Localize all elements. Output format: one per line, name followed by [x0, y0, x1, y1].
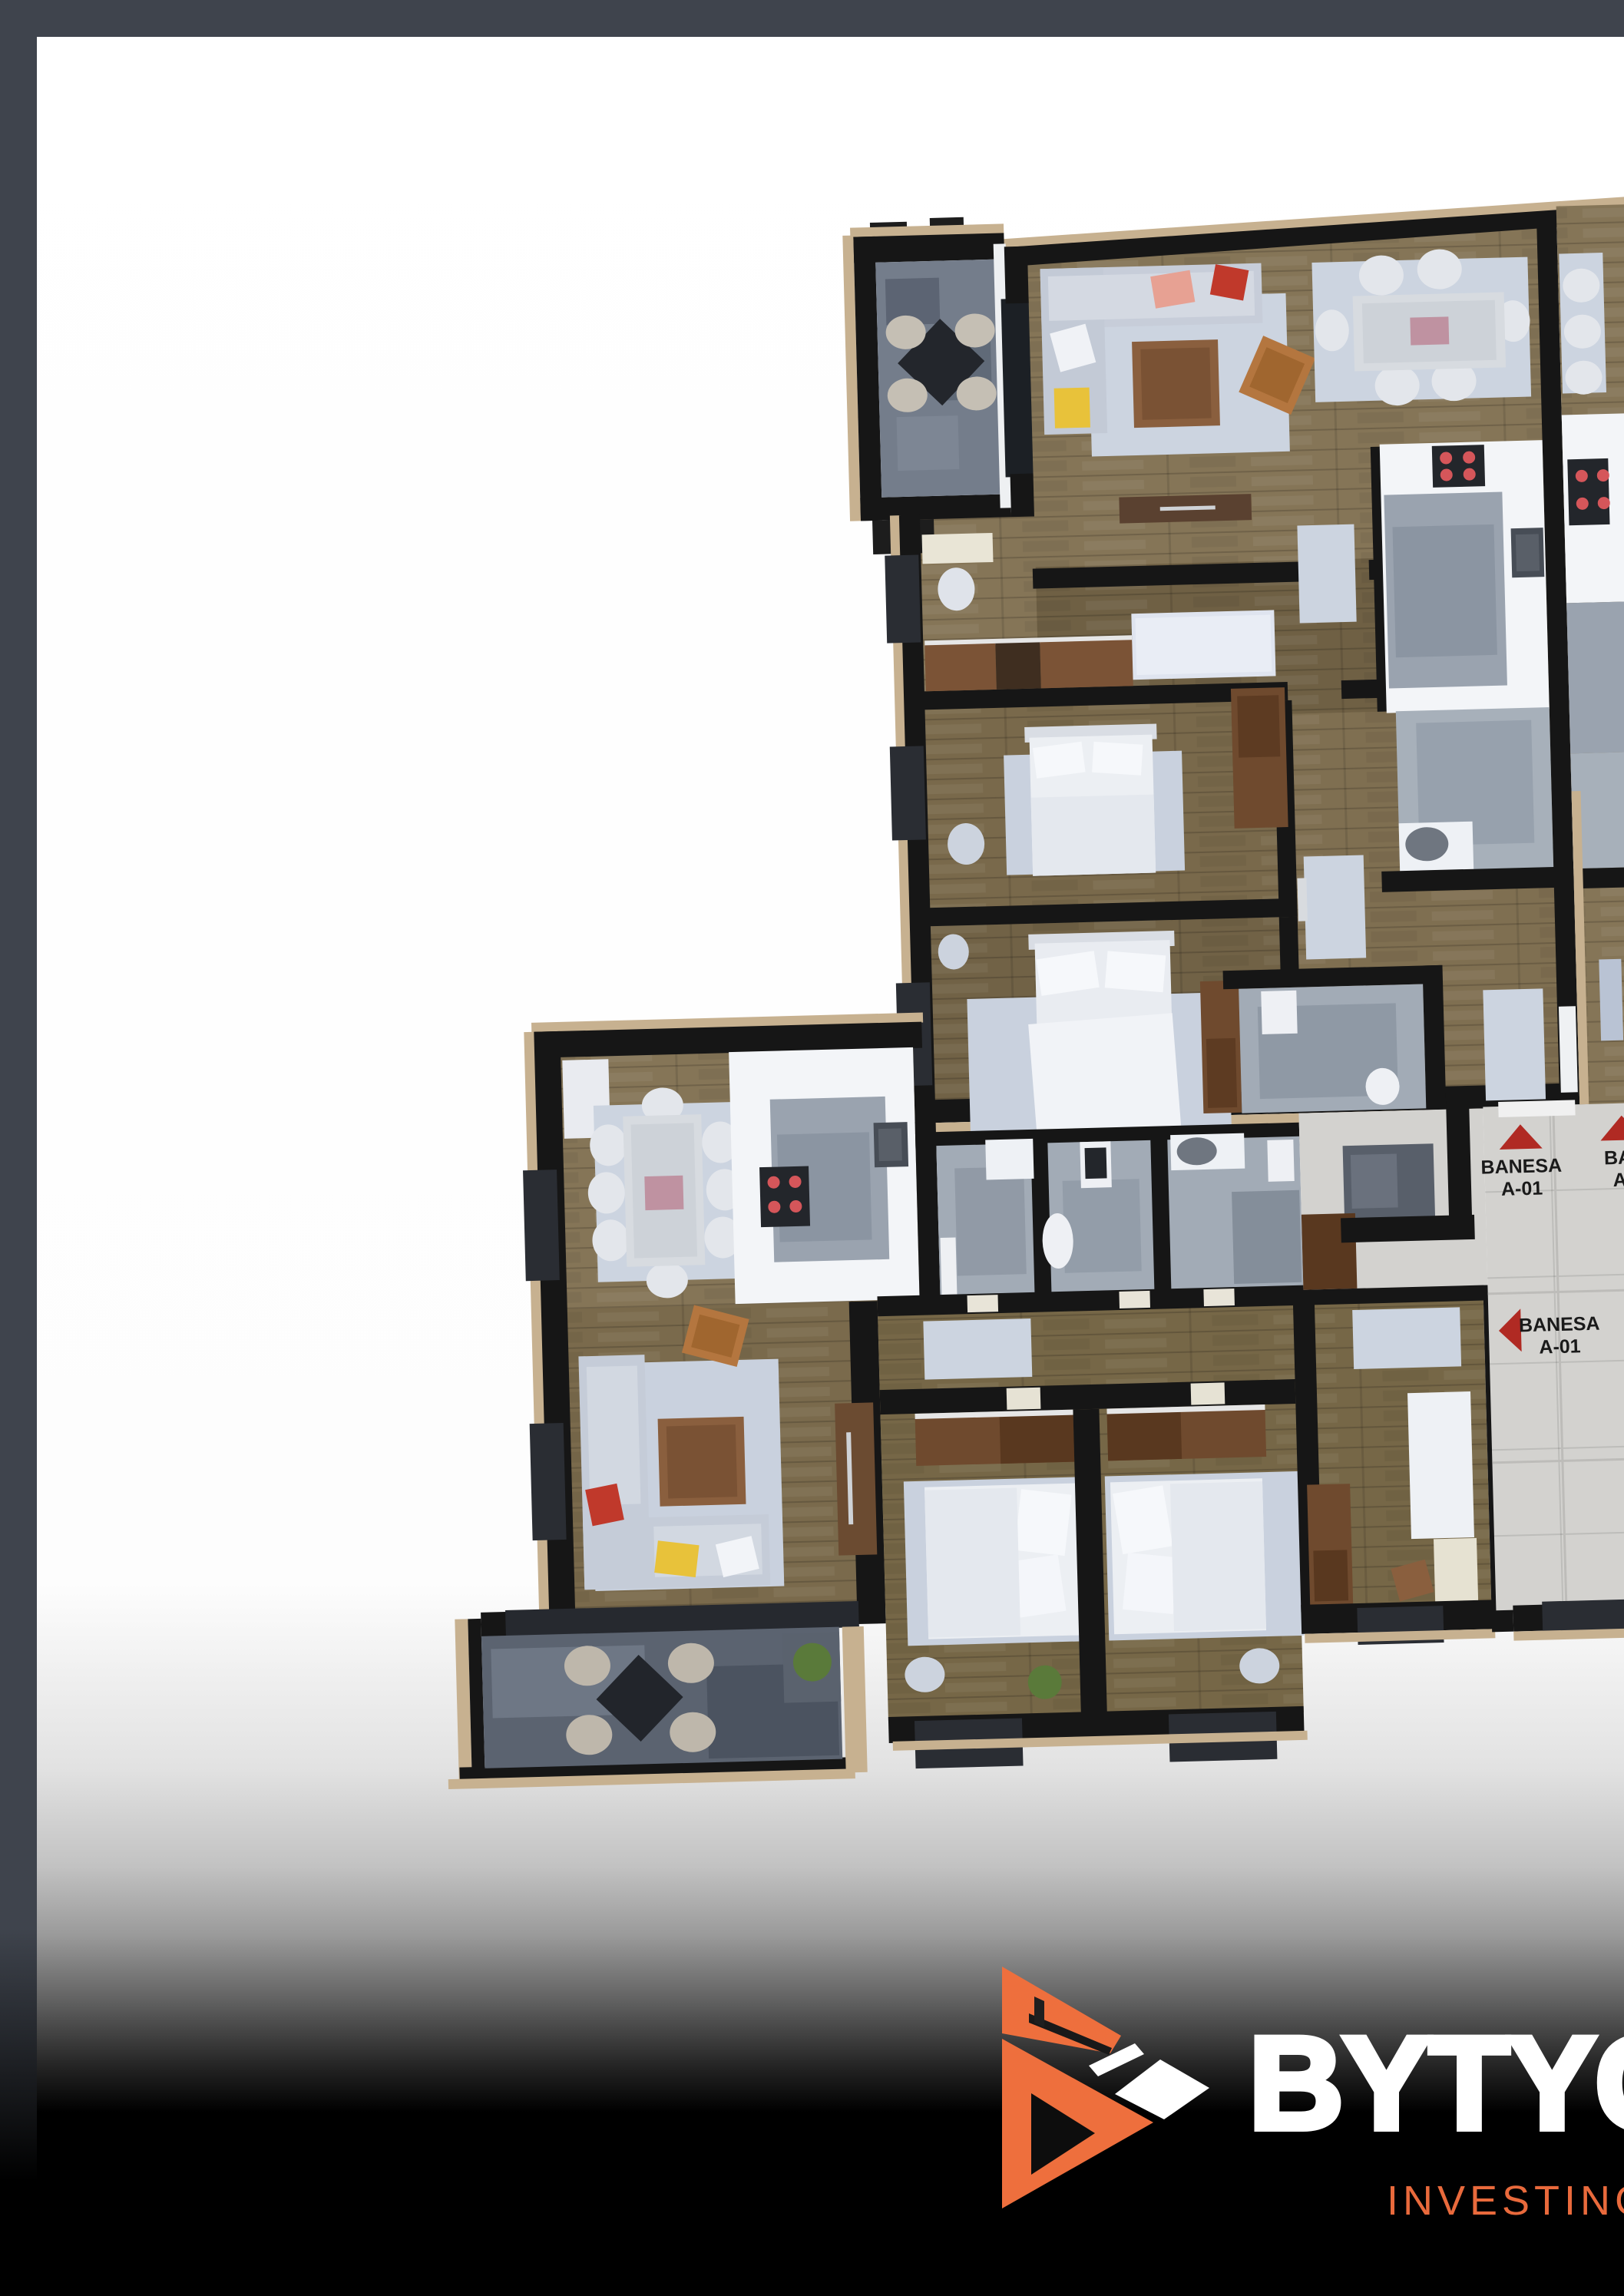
- svg-text:A-01: A-01: [1539, 1335, 1581, 1358]
- svg-text:BANESA: BANESA: [1480, 1155, 1562, 1179]
- svg-text:BYTYÇI: BYTYÇI: [1249, 2010, 1624, 2157]
- svg-text:BAN: BAN: [1604, 1146, 1624, 1169]
- svg-text:BANESA: BANESA: [1519, 1313, 1600, 1337]
- svg-text:A-01: A-01: [1501, 1177, 1543, 1199]
- svg-text:A-: A-: [1612, 1169, 1624, 1191]
- svg-text:INVESTING G: INVESTING G: [1387, 2178, 1624, 2224]
